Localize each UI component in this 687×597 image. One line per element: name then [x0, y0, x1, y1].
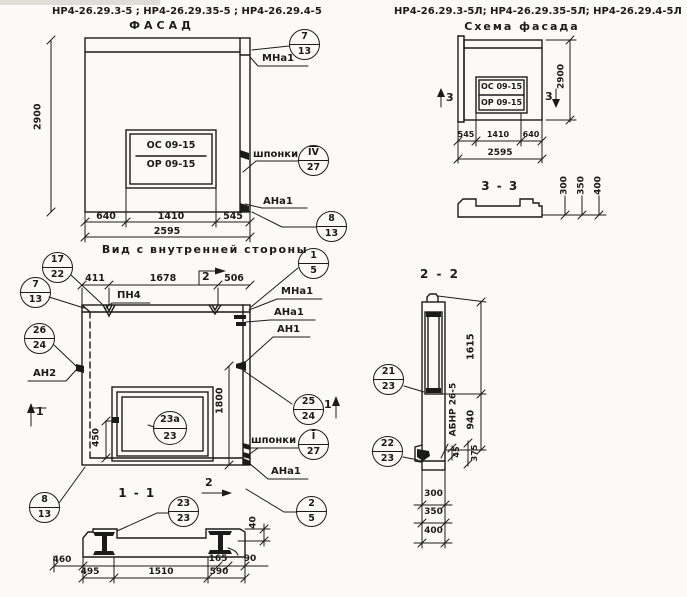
callout-iv-27-facade: IV 27: [298, 145, 329, 176]
callout-bottom: 13: [317, 227, 346, 241]
facade-title: ФАСАД: [110, 20, 214, 31]
section22-dim-45: 45: [453, 439, 461, 465]
callout-bottom: 23: [373, 452, 402, 466]
scheme-section-mark-right: 3: [545, 91, 553, 102]
callout-top: 23: [169, 497, 198, 512]
inner-label-mna1: МНа1: [281, 287, 313, 297]
callout-top: 7: [290, 30, 319, 45]
callout-top: I: [299, 430, 328, 445]
callout-top: 25: [294, 395, 323, 410]
scheme-dim-height: 2900: [558, 59, 567, 95]
callout-top: 21: [374, 365, 403, 380]
facade-dim-1410: 1410: [151, 212, 191, 222]
facade-codes: НР4-26.29.3-5 ; НР4-26.29.35-5 ; НР4-26.…: [52, 7, 342, 17]
callout-bottom: 27: [299, 445, 328, 459]
scheme-window-mark-top: ОС 09-15: [481, 83, 522, 91]
section11-dim-1510: 1510: [143, 568, 179, 577]
inner-label-shponki: шпонки: [251, 436, 296, 446]
scheme-dim-640: 640: [516, 131, 546, 139]
section22-dim-940: 940: [466, 402, 476, 438]
facade-window-mark-top: ОС 09-15: [136, 141, 206, 151]
scheme-dim-545: 545: [451, 131, 481, 139]
callout-top: IV: [299, 146, 328, 161]
facade-dim-545: 545: [213, 212, 253, 222]
scheme-title: Схема фасада: [452, 21, 592, 32]
facade-label-shponki: шпонки: [253, 150, 298, 160]
inner-section-mark-2-bottom: 2: [205, 477, 213, 488]
section33-title: 3 - 3: [478, 180, 522, 192]
callout-bottom: 13: [21, 293, 50, 307]
drawing-linework: [0, 0, 687, 597]
inner-dim-506: 506: [215, 274, 253, 284]
inner-label-an2: АН2: [33, 369, 56, 379]
callout-23-23: 23 23: [168, 496, 199, 527]
section33-dim-300: 300: [561, 170, 570, 202]
section11-lines: [83, 529, 245, 557]
callout-top: 23а: [154, 412, 186, 429]
section11-dim-460: 460: [48, 556, 76, 565]
callout-26-24: 26 24: [24, 323, 55, 354]
callout-23a-23: 23а 23: [153, 411, 187, 445]
facade-label-ana1: АНа1: [263, 197, 293, 207]
callout-bottom: 23: [169, 512, 198, 526]
callout-bottom: 5: [297, 512, 326, 526]
callout-8-13-facade: 8 13: [316, 211, 347, 242]
scheme-section-mark-left: 3: [446, 92, 454, 103]
callout-bottom: 24: [25, 339, 54, 353]
inner-label-ana1-bottom: АНа1: [271, 467, 301, 477]
section11-dim-40: 40: [250, 509, 259, 537]
section11-dim-495: 495: [76, 568, 104, 577]
facade-window-mark-bottom: ОР 09-15: [136, 160, 206, 170]
section22-dim-300: 300: [421, 490, 446, 499]
inner-label-ana1: АНа1: [274, 308, 304, 318]
inner-view-title: Вид с внутренней стороны: [98, 244, 312, 255]
inner-dim-1678: 1678: [143, 274, 183, 284]
callout-top: 26: [25, 324, 54, 339]
callout-i-27: I 27: [298, 429, 329, 460]
section22-dim-400: 400: [421, 527, 446, 536]
callout-top: 8: [317, 212, 346, 227]
scheme-dim-1410: 1410: [479, 131, 517, 139]
inner-section-mark-1-right: 1: [324, 399, 332, 410]
inner-dim-450: 450: [93, 420, 102, 456]
section33-lines: [458, 199, 542, 217]
callout-2-5: 2 5: [296, 496, 327, 527]
drawing-sheet: НР4-26.29.3-5 ; НР4-26.29.35-5 ; НР4-26.…: [0, 0, 687, 597]
callout-bottom: 27: [299, 161, 328, 175]
callout-21-23: 21 23: [373, 364, 404, 395]
section22-title: 2 - 2: [416, 268, 464, 280]
callout-top: 22: [373, 437, 402, 452]
section11-dim-590: 590: [204, 568, 234, 577]
callout-top: 8: [30, 493, 59, 508]
callout-1-5: 1 5: [298, 248, 329, 279]
callout-top: 7: [21, 278, 50, 293]
inner-dim-1800: 1800: [215, 383, 225, 419]
facade-dim-height: 2900: [33, 99, 43, 135]
callout-bottom: 5: [299, 264, 328, 278]
section22-dim-1615: 1615: [466, 329, 476, 365]
callout-top: 2: [297, 497, 326, 512]
section11-title: 1 - 1: [115, 487, 159, 499]
section33-dim-400: 400: [595, 170, 604, 202]
callout-top: 17: [43, 253, 72, 268]
section33-dim-350: 350: [578, 170, 587, 202]
callout-bottom: 13: [30, 508, 59, 522]
callout-bottom: 23: [154, 429, 186, 445]
callout-top: 1: [299, 249, 328, 264]
callout-8-13-inner: 8 13: [29, 492, 60, 523]
scheme-window-mark-bottom: ОР 09-15: [481, 99, 522, 107]
section11-dim-90: 90: [240, 555, 260, 564]
scheme-dim-total: 2595: [480, 149, 520, 158]
section22-dim-350: 350: [421, 508, 446, 517]
section22-lines: [415, 294, 445, 470]
callout-22-23: 22 23: [372, 436, 403, 467]
section22-dim-375: 375: [471, 439, 479, 467]
section11-dim-165: 165: [206, 555, 230, 564]
callout-25-24: 25 24: [293, 394, 324, 425]
inner-label-an1: АН1: [277, 325, 300, 335]
inner-section-mark-2-top: 2: [202, 271, 210, 282]
facade-view-lines: [85, 38, 250, 212]
inner-section-mark-1-left: 1: [36, 406, 44, 417]
inner-dim-411: 411: [76, 274, 114, 284]
callout-7-13-inner: 7 13: [20, 277, 51, 308]
facade-dim-640: 640: [86, 212, 126, 222]
scheme-codes: НР4-26.29.3-5Л; НР4-26.29.35-5Л; НР4-26.…: [394, 7, 686, 17]
scheme-view-lines: [458, 36, 542, 122]
callout-bottom: 23: [374, 380, 403, 394]
callout-bottom: 13: [290, 45, 319, 59]
inner-label-pn4: ПН4: [117, 291, 141, 301]
facade-dim-total: 2595: [147, 227, 187, 237]
callout-7-13-facade: 7 13: [289, 29, 320, 60]
callout-bottom: 24: [294, 410, 323, 424]
